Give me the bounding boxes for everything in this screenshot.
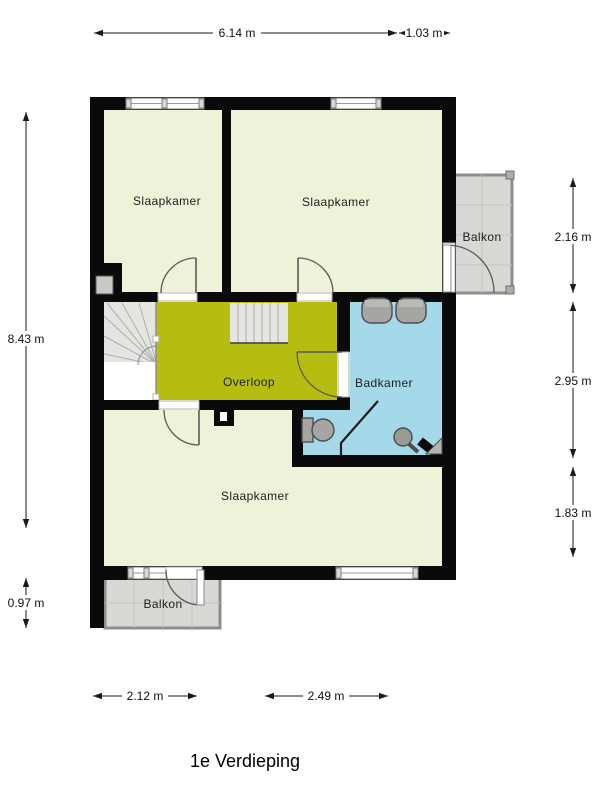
label-bedroom-bottom: Slaapkamer	[221, 489, 289, 503]
dim-bottom-1: 2.12 m	[127, 689, 164, 703]
dim-right-3: 1.83 m	[555, 506, 592, 520]
label-landing: Overloop	[223, 375, 275, 389]
floorplan-drawing: 6.14 m 1.03 m 8.43 m 0.97 m 2.16 m 2.95 …	[0, 0, 600, 800]
label-bedroom-top-left: Slaapkamer	[133, 194, 201, 208]
dim-top-1: 6.14 m	[219, 26, 256, 40]
door-opening	[159, 401, 199, 409]
stair-void	[104, 362, 156, 400]
dimension-arrow	[23, 619, 29, 628]
balcony-post-icon	[506, 171, 514, 179]
dimension-arrow	[23, 578, 29, 587]
shower-head-icon	[394, 428, 412, 446]
page-title: 1e Verdieping	[190, 751, 300, 771]
door-jamb-icon	[153, 336, 159, 342]
dimension-arrow	[94, 30, 103, 36]
floorplan-canvas: 6.14 m 1.03 m 8.43 m 0.97 m 2.16 m 2.95 …	[0, 0, 600, 800]
door-jamb-icon	[153, 394, 159, 400]
wall-mid-b	[197, 292, 297, 302]
dimension-arrow	[570, 178, 576, 187]
dimension-arrow	[570, 467, 576, 476]
window-icon	[126, 98, 204, 109]
dim-top-2: 1.03 m	[406, 26, 443, 40]
dimension-arrow	[265, 693, 274, 699]
wall-landing-south-b	[199, 400, 350, 410]
dim-left-2: 0.97 m	[8, 596, 45, 610]
dimension-arrow	[570, 548, 576, 557]
wall-bedroom-divider	[222, 110, 231, 292]
duct-slot-icon	[220, 412, 227, 421]
dimension-arrow	[23, 519, 29, 528]
label-bathroom: Badkamer	[355, 376, 413, 390]
wall-bathroom-south	[292, 455, 456, 467]
door-opening	[338, 352, 349, 397]
dimension-arrow	[388, 30, 397, 36]
sink-detail	[365, 300, 389, 307]
winder-stairs	[104, 302, 159, 400]
dimension-arrow	[570, 284, 576, 293]
door-opening	[297, 293, 332, 301]
window-icon	[128, 567, 166, 579]
toilet-icon	[302, 418, 334, 442]
duct-icon	[96, 276, 113, 294]
sink-detail	[399, 300, 423, 307]
door-opening	[158, 293, 197, 301]
wall-right	[442, 97, 456, 580]
door-leaf-icon	[197, 570, 204, 605]
dimension-arrow	[570, 449, 576, 458]
dimension-arrow	[93, 693, 102, 699]
dimension-arrow	[188, 693, 197, 699]
balcony-post-icon	[506, 286, 514, 294]
window-icon	[331, 98, 381, 109]
label-balcony-bottom: Balkon	[143, 597, 182, 611]
dimension-arrow	[379, 693, 388, 699]
wall-left	[90, 97, 104, 628]
dim-right-2: 2.95 m	[555, 374, 592, 388]
sink-icon	[362, 298, 392, 323]
straight-stairs-flight	[230, 303, 288, 343]
window-icon	[336, 567, 418, 579]
door-leaf-icon	[443, 245, 451, 292]
dimension-arrow	[570, 302, 576, 311]
dimension-arrow	[23, 112, 29, 121]
label-balcony-right: Balkon	[462, 230, 501, 244]
wall-landing-south-a	[104, 400, 159, 410]
straight-stairs	[230, 303, 288, 343]
wall-bathroom-west-upper	[337, 302, 350, 352]
label-bedroom-top-right: Slaapkamer	[302, 195, 370, 209]
dim-left-1: 8.43 m	[8, 332, 45, 346]
sink-icon	[396, 298, 426, 323]
dim-bottom-2: 2.49 m	[308, 689, 345, 703]
dim-right-1: 2.16 m	[555, 230, 592, 244]
